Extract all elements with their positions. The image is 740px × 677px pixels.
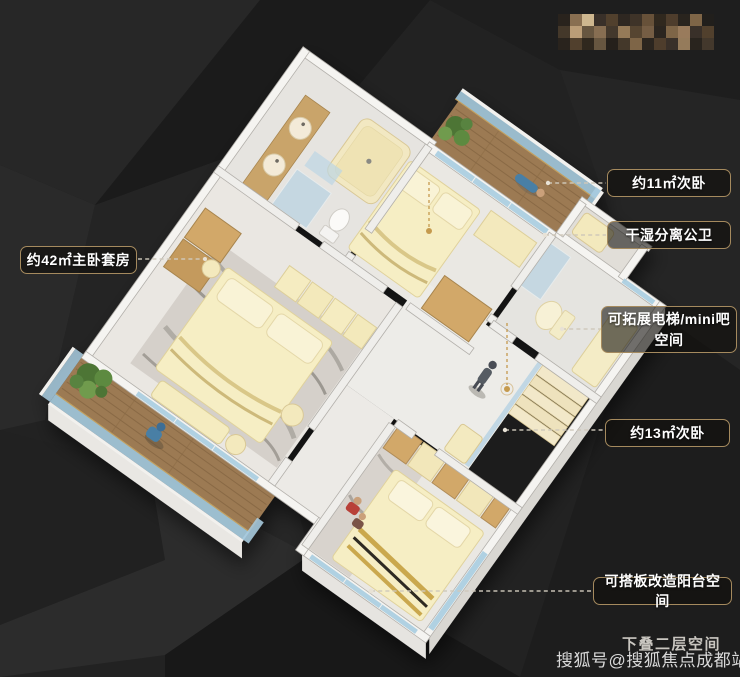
floorplan-page: 约11㎡次卧 干湿分离公卫 可拓展电梯/mini吧空间 约13㎡次卧 约42㎡主… (0, 0, 740, 677)
callout-bedroom-13: 约13㎡次卧 (605, 419, 730, 447)
gold-anchor-dot (426, 228, 432, 234)
callout-public-bath: 干湿分离公卫 (607, 221, 731, 249)
callout-balcony: 可搭板改造阳台空间 (593, 577, 732, 605)
gold-anchor-dot (504, 386, 510, 392)
callout-master-suite: 约42㎡主卧套房 (20, 246, 137, 274)
blurred-watermark (558, 14, 714, 50)
callout-minibar: 可拓展电梯/mini吧空间 (601, 306, 737, 353)
callout-bedroom-11: 约11㎡次卧 (607, 169, 731, 197)
watermark-text: 搜狐号@搜狐焦点成都站 (556, 646, 740, 671)
